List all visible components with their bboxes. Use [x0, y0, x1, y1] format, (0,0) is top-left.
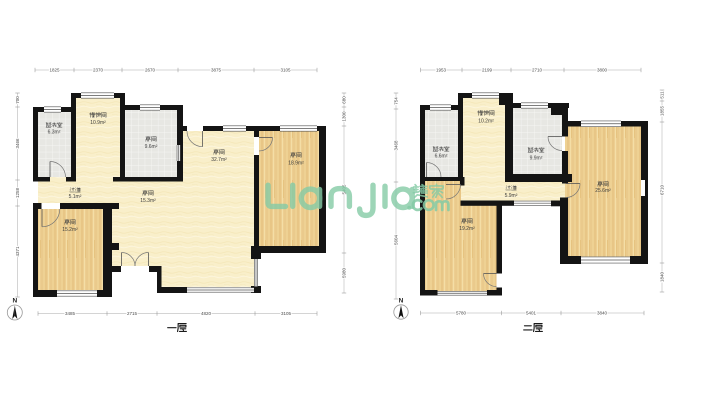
- svg-text:15.3m²: 15.3m²: [140, 198, 156, 204]
- svg-text:3840: 3840: [597, 311, 608, 316]
- svg-text:6.6m²: 6.6m²: [435, 154, 448, 160]
- svg-text:3105: 3105: [280, 68, 291, 73]
- svg-text:6.3m²: 6.3m²: [48, 130, 61, 136]
- svg-text:3485: 3485: [65, 311, 76, 316]
- svg-text:18.9m²: 18.9m²: [288, 161, 304, 167]
- svg-text:10.2m²: 10.2m²: [478, 119, 494, 125]
- svg-text:N: N: [399, 297, 404, 304]
- svg-text:1825: 1825: [49, 68, 60, 73]
- svg-text:10.9m²: 10.9m²: [90, 120, 106, 126]
- svg-text:1300: 1300: [342, 111, 347, 122]
- svg-text:19.2m²: 19.2m²: [459, 226, 475, 232]
- svg-text:2715: 2715: [127, 311, 138, 316]
- svg-text:1855: 1855: [660, 105, 665, 116]
- svg-text:2670: 2670: [145, 68, 156, 73]
- svg-text:4371: 4371: [15, 246, 20, 257]
- svg-text:3468: 3468: [394, 140, 399, 151]
- svg-text:1258: 1258: [15, 187, 20, 198]
- svg-text:N: N: [12, 298, 17, 305]
- svg-text:754: 754: [394, 97, 399, 105]
- svg-text:5401: 5401: [526, 311, 537, 316]
- svg-text:15.2m²: 15.2m²: [62, 227, 78, 233]
- svg-text:25.6m²: 25.6m²: [595, 188, 611, 194]
- svg-text:1953: 1953: [436, 68, 447, 73]
- svg-text:3800: 3800: [597, 68, 608, 73]
- svg-text:511: 511: [660, 91, 665, 99]
- svg-text:2710: 2710: [532, 68, 543, 73]
- svg-text:5.9m²: 5.9m²: [505, 193, 518, 199]
- svg-text:3466: 3466: [15, 138, 20, 149]
- svg-text:700: 700: [15, 96, 20, 104]
- svg-text:5604: 5604: [394, 234, 399, 245]
- svg-text:2370: 2370: [93, 68, 104, 73]
- svg-text:32.7m²: 32.7m²: [211, 157, 227, 163]
- svg-text:680: 680: [342, 96, 347, 104]
- svg-text:3875: 3875: [211, 68, 222, 73]
- svg-text:3105: 3105: [281, 311, 292, 316]
- svg-text:1840: 1840: [660, 271, 665, 282]
- svg-text:5980: 5980: [342, 267, 347, 278]
- svg-text:9.6m²: 9.6m²: [145, 144, 158, 150]
- svg-text:4820: 4820: [201, 311, 212, 316]
- svg-text:6710: 6710: [660, 184, 665, 195]
- svg-text:5780: 5780: [456, 311, 467, 316]
- svg-text:2199: 2199: [482, 68, 493, 73]
- svg-text:9.9m²: 9.9m²: [530, 156, 543, 162]
- svg-text:5.1m²: 5.1m²: [69, 194, 82, 200]
